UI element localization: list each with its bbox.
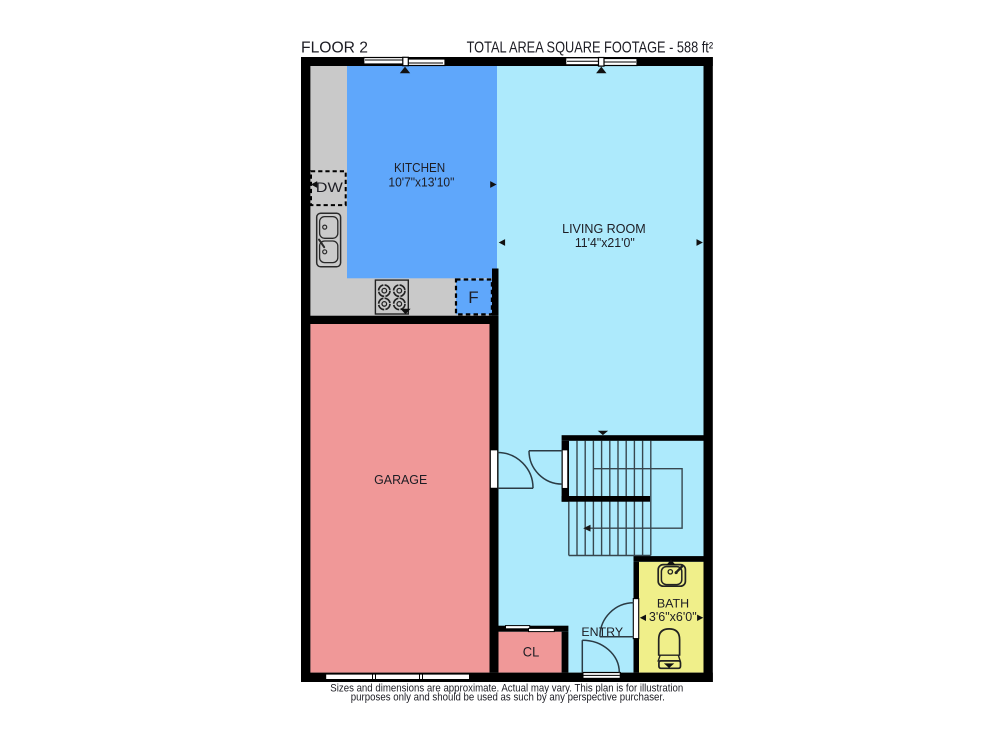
svg-text:3'6"x6'0": 3'6"x6'0" xyxy=(649,610,697,624)
svg-text:purposes only and should be us: purposes only and should be used as such… xyxy=(351,692,665,704)
svg-text:10'7"x13'10": 10'7"x13'10" xyxy=(388,175,454,190)
svg-text:LIVING ROOM: LIVING ROOM xyxy=(562,221,646,236)
svg-text:DW: DW xyxy=(316,180,343,195)
svg-text:11'4"x21'0": 11'4"x21'0" xyxy=(575,235,635,250)
svg-text:FLOOR 2: FLOOR 2 xyxy=(301,40,368,57)
svg-text:GARAGE: GARAGE xyxy=(374,472,427,487)
svg-text:BATH: BATH xyxy=(657,596,689,610)
svg-text:F: F xyxy=(468,288,478,307)
svg-text:CL: CL xyxy=(523,644,540,660)
svg-text:ENTRY: ENTRY xyxy=(581,625,623,639)
svg-text:TOTAL AREA SQUARE FOOTAGE - 58: TOTAL AREA SQUARE FOOTAGE - 588 ft² xyxy=(467,40,713,57)
svg-text:KITCHEN: KITCHEN xyxy=(394,160,445,175)
